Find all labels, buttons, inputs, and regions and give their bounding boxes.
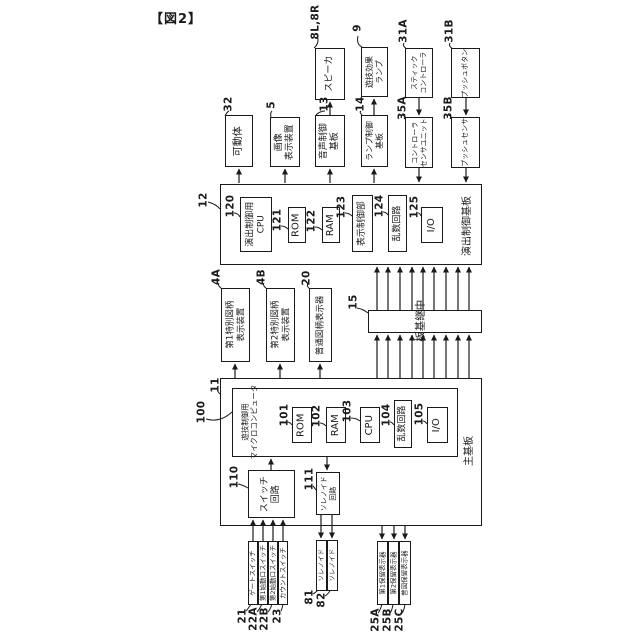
- ref-count-switch: 23: [271, 608, 284, 623]
- block-switch-circuit: スイッチ 回路: [248, 470, 295, 518]
- ref-main-io: 105: [413, 403, 426, 426]
- ref-main-rom: 101: [278, 404, 291, 427]
- ref-display-control-unit: 123: [335, 196, 348, 219]
- ref-lamp-control-board: 14: [354, 96, 367, 111]
- block-count-switch: カウントスイッチ: [278, 541, 288, 605]
- ref-game-control-microcomputer: 100: [195, 401, 208, 424]
- ref-push-button: 31B: [443, 19, 456, 43]
- block-lamp-control-board: ランプ制御 基板: [361, 115, 388, 167]
- block-main-io: I/O: [427, 407, 448, 443]
- ref-main-cpu: 103: [341, 400, 354, 423]
- label-game-control-microcomputer: 遊技制御用 マイクロコンピュータ: [241, 385, 260, 460]
- block-second-start-switch: 第2始動口スイッチ: [268, 541, 278, 605]
- ref-movable-body: 32: [222, 96, 235, 111]
- block-effect-io: I/O: [421, 207, 443, 243]
- block-second-special-symbol-display: 第2特別図柄 表示装置: [266, 288, 295, 362]
- ref-push-sensor: 35B: [442, 96, 455, 120]
- label-main-board: 主基板: [464, 436, 477, 466]
- block-audio-control-board: 音声制御 基板: [315, 115, 345, 167]
- ref-solenoid-82: 82: [315, 592, 328, 607]
- block-second-hold-display: 第2保留表示器: [388, 541, 399, 605]
- block-effect-cpu: 演出制御用 CPU: [240, 197, 272, 252]
- patent-figure-canvas: 【図2】: [0, 0, 640, 640]
- ref-switch-circuit: 110: [228, 466, 241, 489]
- block-display-control-unit: 表示制御部: [352, 195, 373, 252]
- block-relay-board: 中継基板: [368, 310, 482, 333]
- ref-effect-cpu: 120: [224, 195, 237, 218]
- block-image-display-device: 画像 表示装置: [270, 117, 300, 167]
- block-normal-hold-display: 普図保留表示器: [399, 541, 411, 605]
- block-normal-symbol-display: 普通図柄表示器: [309, 288, 332, 362]
- ref-main-ram: 102: [310, 405, 323, 428]
- block-first-special-symbol-display: 第1特別図柄 表示装置: [221, 288, 250, 362]
- ref-normal-hold-display: 25C: [393, 608, 406, 631]
- ref-normal-symbol-display: 20: [300, 270, 313, 285]
- ref-effect-control-board: 12: [197, 192, 210, 207]
- block-controller-sensor-unit: コントローラ センサユニット: [405, 117, 433, 168]
- block-solenoid-circuit: ソレノイド 回路: [316, 472, 340, 515]
- block-first-hold-display: 第1保留表示器: [377, 541, 388, 605]
- block-solenoid-82: ソレノイド: [327, 540, 338, 591]
- ref-effect-rom: 121: [271, 209, 284, 232]
- block-stick-controller: スティック コントローラ: [405, 48, 433, 98]
- block-effect-random-circuit: 乱数回路: [388, 195, 407, 252]
- ref-effect-ram: 122: [305, 210, 318, 233]
- ref-speaker: 8L,8R: [309, 5, 322, 40]
- ref-audio-control-board: 13: [318, 96, 331, 111]
- ref-controller-sensor-unit: 35A: [396, 96, 409, 120]
- ref-first-special-symbol-display: 4A: [210, 269, 223, 285]
- block-main-random-circuit: 乱数回路: [394, 400, 412, 448]
- block-gate-switch: ゲートスイッチ: [248, 541, 258, 605]
- block-solenoid-81: ソレノイド: [316, 540, 327, 591]
- block-first-start-switch: 第1始動口スイッチ: [258, 541, 268, 605]
- label-effect-control-board: 演出制御基板: [462, 196, 475, 256]
- ref-second-start-switch: 22B: [258, 607, 271, 631]
- ref-stick-controller: 31A: [397, 19, 410, 43]
- block-movable-body: 可動体: [225, 115, 253, 167]
- ref-image-display-device: 5: [265, 101, 278, 109]
- ref-effect-io: 125: [408, 196, 421, 219]
- ref-relay-board: 15: [347, 294, 360, 309]
- ref-main-random-circuit: 104: [380, 404, 393, 427]
- block-effect-rom: ROM: [288, 207, 306, 243]
- block-push-button: プッシュボタン: [451, 48, 480, 98]
- block-game-effect-lamp: 遊技効果 ランプ: [361, 47, 388, 97]
- ref-game-effect-lamp: 9: [351, 24, 364, 32]
- ref-solenoid-circuit: 111: [303, 468, 316, 491]
- block-push-sensor: プッシュセンサ: [451, 117, 480, 168]
- block-main-rom: ROM: [292, 407, 312, 443]
- block-main-cpu: CPU: [360, 407, 380, 443]
- ref-second-special-symbol-display: 4B: [255, 269, 268, 285]
- ref-effect-random-circuit: 124: [373, 195, 386, 218]
- ref-main-board: 11: [209, 377, 222, 392]
- block-speaker: スピーカ: [315, 48, 345, 100]
